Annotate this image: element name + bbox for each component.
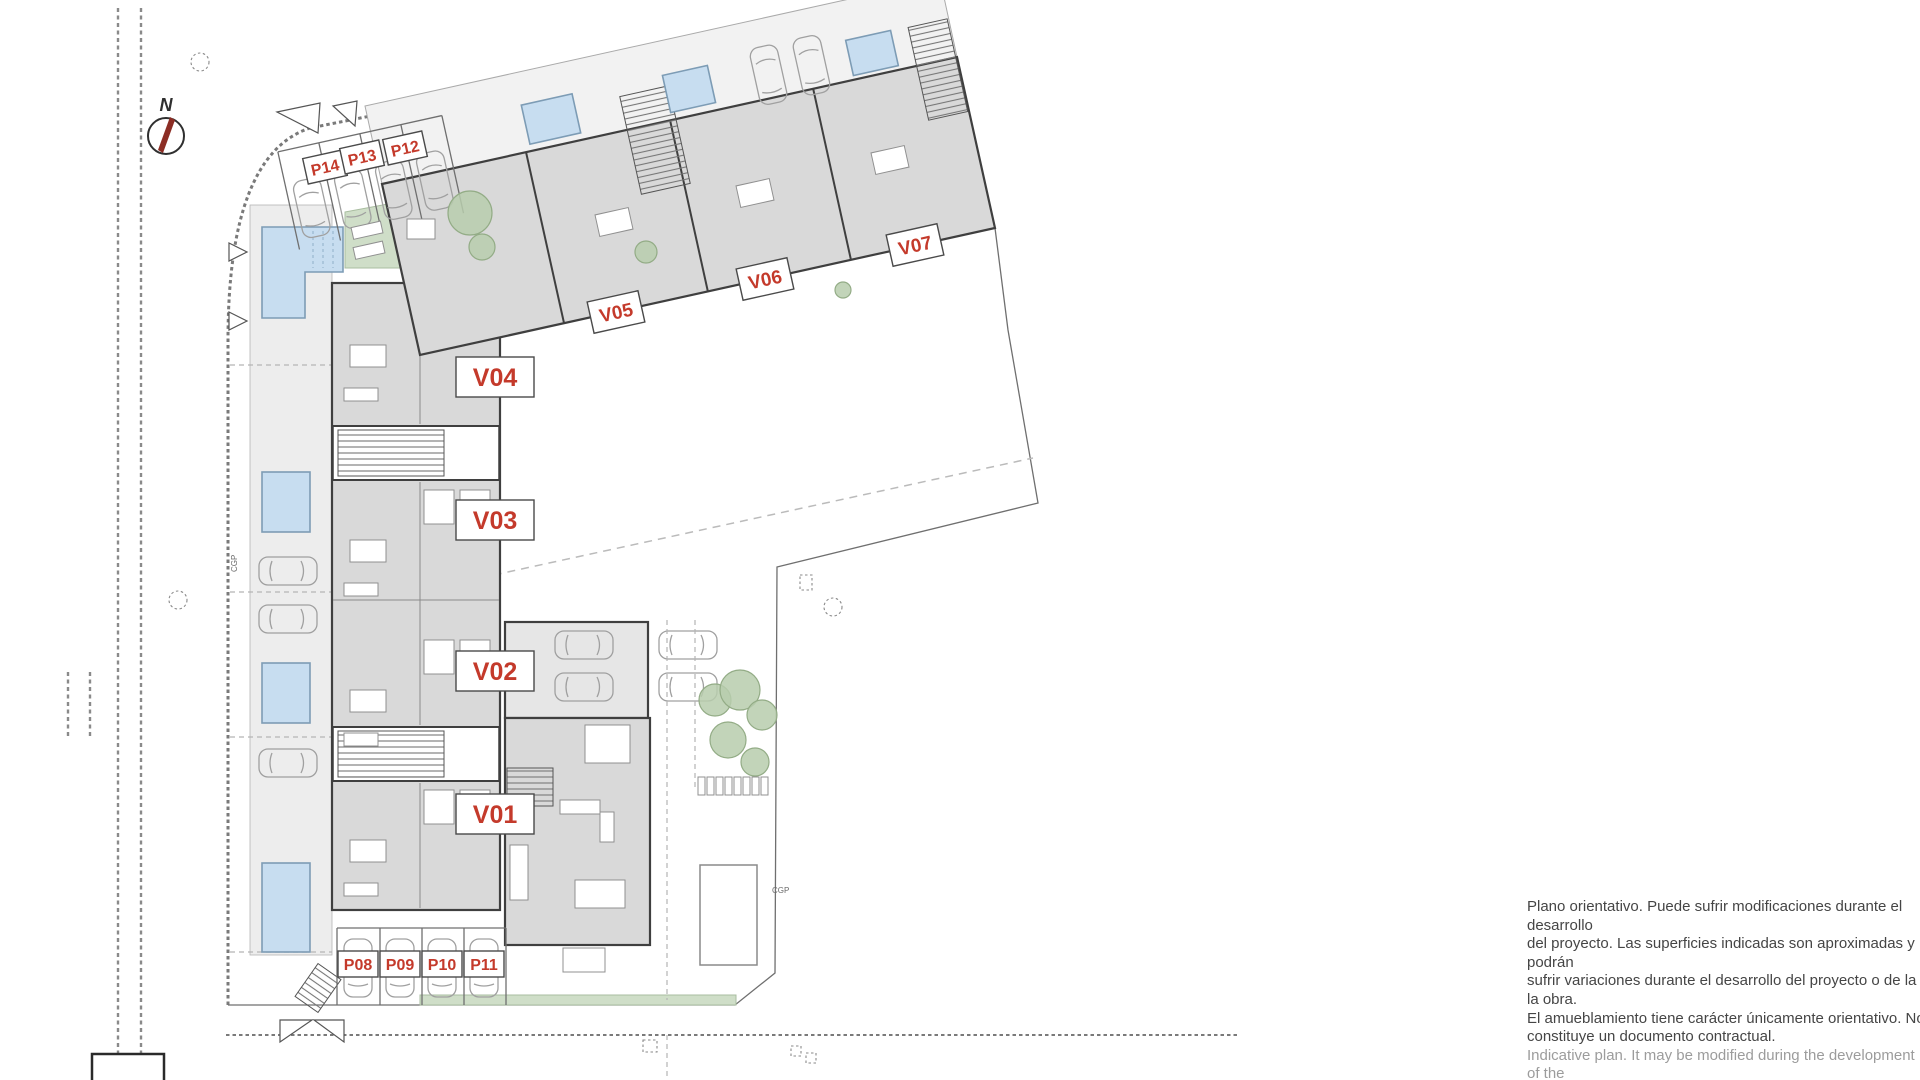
- parking-label-p10: P10: [422, 951, 462, 977]
- parking-label-p11: P11: [464, 951, 504, 977]
- parking-label-p09: P09: [380, 951, 420, 977]
- parking-label-p09-text: P09: [386, 957, 415, 974]
- parking-label-p08-text: P08: [344, 957, 373, 974]
- deck-slats: [698, 777, 768, 795]
- adjacent-structure: [92, 1054, 164, 1080]
- villa-label-v04-text: V04: [473, 364, 518, 392]
- disclaimer-spanish: Plano orientativo. Puede sufrir modifica…: [1527, 898, 1920, 1047]
- disclaimer-block: Plano orientativo. Puede sufrir modifica…: [1527, 898, 1920, 1080]
- pool-left-4: [262, 863, 310, 952]
- villa-label-v03: V03: [456, 500, 534, 540]
- villa-label-v02-text: V02: [473, 658, 517, 686]
- north-arrow: N: [148, 95, 184, 154]
- parking-label-p08: P08: [338, 951, 378, 977]
- north-letter: N: [160, 95, 174, 115]
- parking-label-p13: P13: [340, 140, 385, 174]
- parking-label-p10-text: P10: [428, 957, 457, 974]
- villa-pool-pad: [700, 865, 757, 965]
- villa-label-v04: V04: [456, 357, 534, 397]
- pool-left-3: [262, 663, 310, 723]
- site-plan-page: CGP CGP V04 V03 V02 V01 V05 V06 V07 P14 …: [0, 0, 1920, 1080]
- road-markings: [68, 8, 141, 1080]
- parking-label-p11-text: P11: [470, 957, 498, 974]
- disclaimer-english: Indicative plan. It may be modified duri…: [1527, 1047, 1920, 1080]
- villa-label-v03-text: V03: [473, 507, 517, 535]
- cgp-label-right: CGP: [772, 886, 789, 895]
- villa-garden: [667, 620, 777, 1000]
- cgp-label-left: CGP: [230, 555, 239, 572]
- villa-label-v02: V02: [456, 651, 534, 691]
- pool-left-2: [262, 472, 310, 532]
- villa-label-v01: V01: [456, 794, 534, 834]
- villa-label-v01-text: V01: [473, 801, 518, 829]
